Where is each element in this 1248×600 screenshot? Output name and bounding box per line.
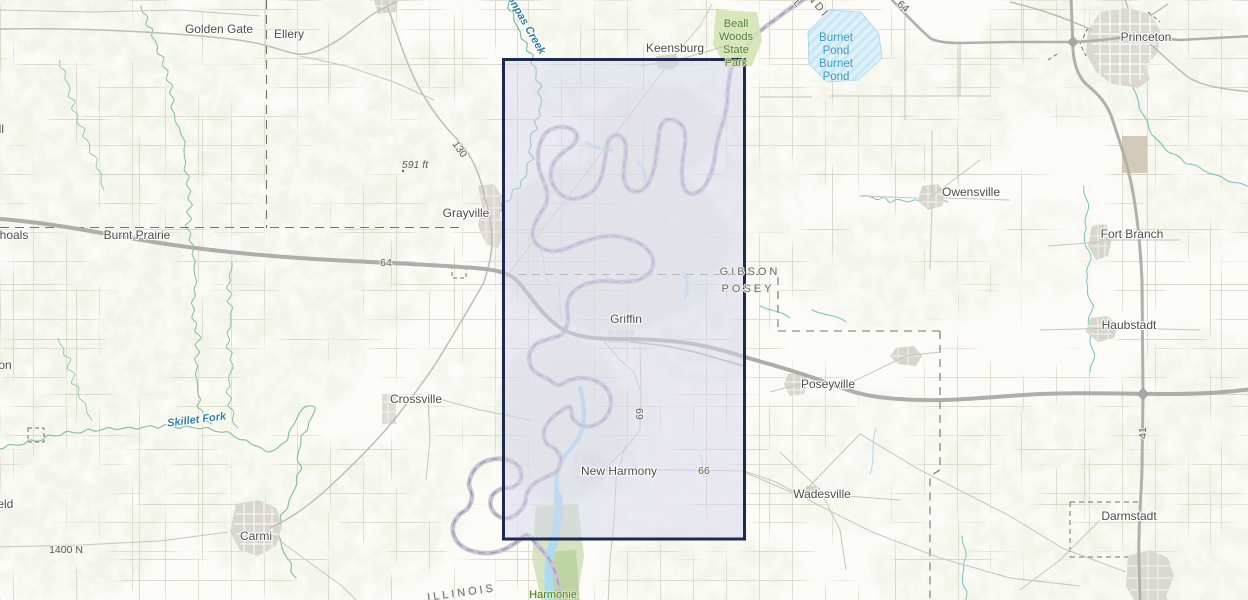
svg-text:New Harmony: New Harmony — [581, 464, 657, 478]
svg-text:Burnt Prairie: Burnt Prairie — [104, 228, 171, 242]
svg-text:Darmstadt: Darmstadt — [1101, 509, 1157, 523]
svg-text:Shoals: Shoals — [0, 228, 28, 242]
svg-text:Harmonie: Harmonie — [529, 589, 577, 600]
svg-text:69: 69 — [634, 408, 646, 420]
svg-text:Haubstadt: Haubstadt — [1102, 318, 1157, 332]
svg-text:BurnetPondBurnetPond: BurnetPondBurnetPond — [819, 32, 854, 83]
svg-text:Fort Branch: Fort Branch — [1101, 227, 1164, 241]
svg-text:nfield: nfield — [0, 497, 13, 511]
svg-text:Golden Gate: Golden Gate — [185, 22, 253, 36]
svg-text:POSEY: POSEY — [722, 283, 775, 295]
svg-text:66: 66 — [698, 465, 710, 477]
svg-text:Ellery: Ellery — [274, 27, 304, 41]
svg-text:Carmi: Carmi — [240, 529, 272, 543]
svg-text:64: 64 — [380, 257, 392, 269]
svg-text:41: 41 — [1137, 427, 1149, 439]
svg-text:Grayville: Grayville — [443, 206, 490, 220]
svg-text:Keensburg: Keensburg — [646, 41, 704, 55]
svg-text:Poseyville: Poseyville — [801, 377, 855, 391]
svg-text:Wadesville: Wadesville — [793, 487, 851, 501]
svg-text:Crossville: Crossville — [390, 392, 442, 406]
svg-text:1400 N: 1400 N — [49, 544, 83, 556]
svg-text:Griffin: Griffin — [610, 312, 642, 326]
svg-text:erton: erton — [0, 358, 12, 372]
svg-text:GIBSON: GIBSON — [720, 266, 781, 278]
svg-text:Princeton: Princeton — [1121, 30, 1172, 44]
svg-text:591 ft: 591 ft — [402, 159, 429, 171]
svg-text:ill: ill — [0, 122, 4, 136]
svg-text:Owensville: Owensville — [942, 185, 1000, 199]
